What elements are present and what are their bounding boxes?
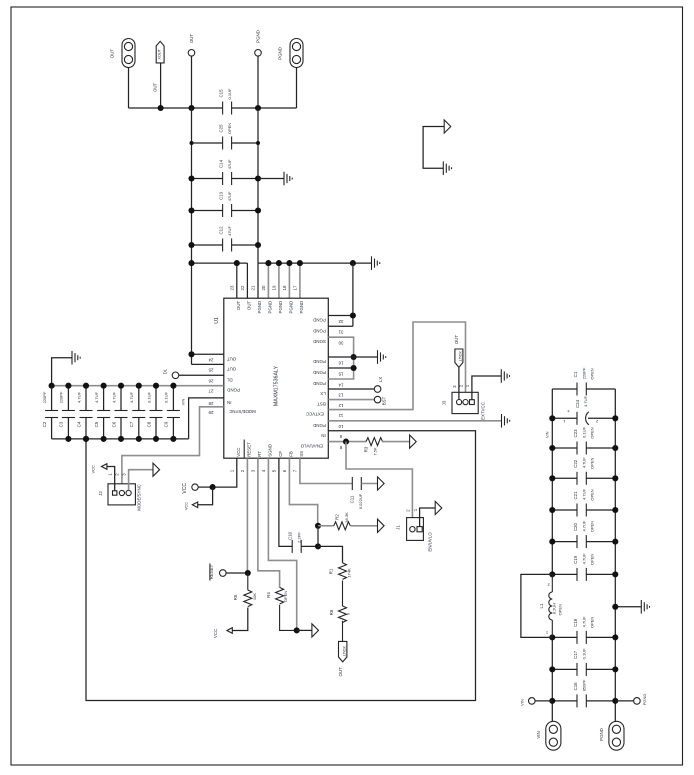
svg-text:0.1UF: 0.1UF	[164, 392, 169, 403]
svg-text:VIN: VIN	[180, 399, 185, 406]
svg-text:10: 10	[338, 424, 343, 429]
svg-text:VIN: VIN	[520, 699, 525, 706]
svg-text:0.1UF: 0.1UF	[581, 427, 586, 438]
svg-text:C17: C17	[573, 650, 578, 659]
svg-text:EXTVCC: EXTVCC	[480, 402, 485, 420]
svg-text:4.7UF: 4.7UF	[581, 553, 586, 564]
svg-text:XOUT: XOUT	[458, 351, 462, 362]
svg-text:C23: C23	[573, 429, 578, 438]
svg-text:OPEN: OPEN	[227, 123, 232, 134]
svg-text:SS: SS	[299, 451, 304, 457]
svg-text:C25: C25	[219, 124, 224, 133]
svg-text:C4: C4	[76, 421, 81, 427]
svg-text:4.7UF: 4.7UF	[581, 520, 586, 531]
svg-text:J1: J1	[396, 525, 401, 530]
svg-text:220PF: 220PF	[42, 391, 47, 403]
svg-text:PGND: PGND	[227, 388, 240, 393]
svg-text:PGND: PGND	[289, 301, 294, 314]
svg-text:PGND: PGND	[313, 318, 326, 323]
svg-text:EXTVCC: EXTVCC	[306, 412, 324, 417]
svg-text:C22: C22	[573, 459, 578, 468]
svg-text:IN: IN	[227, 400, 231, 405]
svg-text:FB: FB	[289, 451, 294, 457]
svg-text:R3: R3	[364, 446, 369, 452]
svg-text:R8: R8	[329, 609, 334, 615]
svg-text:OUT: OUT	[153, 82, 158, 92]
svg-text:OUT: OUT	[227, 366, 237, 371]
svg-text:850PF: 850PF	[581, 679, 586, 691]
svg-text:OPEN: OPEN	[589, 554, 594, 565]
svg-text:C5: C5	[94, 421, 99, 427]
svg-text:OUT: OUT	[338, 667, 343, 677]
svg-text:BST: BST	[317, 402, 326, 407]
svg-text:C15: C15	[219, 89, 224, 98]
svg-text:OPEN: OPEN	[283, 591, 288, 602]
svg-text:PGND: PGND	[313, 370, 326, 375]
svg-text:OPEN: OPEN	[589, 368, 594, 379]
svg-text:17: 17	[293, 285, 298, 290]
svg-text:PGND: PGND	[257, 301, 262, 314]
svg-text:OUT: OUT	[189, 34, 194, 44]
svg-text:PGND: PGND	[299, 301, 304, 314]
svg-text:4.7UF: 4.7UF	[129, 392, 134, 403]
svg-text:C9: C9	[164, 421, 169, 427]
svg-text:OPEN: OPEN	[589, 458, 594, 469]
svg-text:24: 24	[208, 357, 213, 362]
svg-text:PGND: PGND	[278, 301, 283, 314]
svg-text:C16: C16	[573, 682, 578, 691]
svg-text:12: 12	[338, 403, 343, 408]
svg-text:PGND: PGND	[313, 423, 326, 428]
svg-text:VCC: VCC	[90, 465, 95, 474]
svg-text:2.2PF: 2.2PF	[297, 532, 302, 543]
svg-text:L1: L1	[539, 603, 544, 608]
svg-text:PGND: PGND	[255, 30, 260, 43]
svg-text:16: 16	[338, 360, 343, 365]
svg-text:R4: R4	[266, 592, 271, 598]
svg-text:DL: DL	[163, 368, 168, 374]
svg-text:29: 29	[208, 410, 213, 415]
svg-text:ENA/UVLO: ENA/UVLO	[300, 444, 323, 449]
svg-text:47UF: 47UF	[227, 226, 232, 236]
svg-text:LX: LX	[320, 391, 325, 396]
svg-text:C12: C12	[219, 226, 224, 235]
svg-text:OPEN: OPEN	[589, 617, 594, 628]
svg-text:C8: C8	[146, 421, 151, 427]
svg-text:8.2UH: 8.2UH	[552, 603, 557, 614]
svg-text:C20: C20	[573, 523, 578, 532]
svg-text:174K: 174K	[347, 568, 352, 578]
svg-text:U1: U1	[214, 317, 220, 324]
svg-text:0.022UF: 0.022UF	[358, 493, 363, 509]
svg-text:SGND: SGND	[268, 444, 273, 457]
svg-text:C14: C14	[219, 159, 224, 168]
svg-text:IN: IN	[321, 433, 325, 438]
svg-text:CF: CF	[278, 451, 283, 457]
svg-text:25: 25	[208, 367, 213, 372]
svg-text:38.3K: 38.3K	[344, 512, 349, 523]
svg-text:11: 11	[338, 413, 343, 418]
svg-text:C7: C7	[129, 421, 134, 427]
svg-text:C21: C21	[573, 491, 578, 500]
svg-text:220PF: 220PF	[59, 391, 64, 403]
svg-text:C13: C13	[219, 191, 224, 200]
svg-text:PGND: PGND	[599, 728, 604, 741]
svg-text:7.5K: 7.5K	[373, 447, 378, 456]
svg-text:0.1UF: 0.1UF	[581, 648, 586, 659]
svg-text:VCC: VCC	[236, 448, 241, 457]
svg-text:13: 13	[338, 392, 343, 397]
svg-text:4.7UF: 4.7UF	[94, 392, 99, 403]
svg-text:OPEN: OPEN	[589, 489, 594, 500]
svg-text:R1: R1	[328, 568, 333, 574]
svg-text:VCC: VCC	[213, 629, 218, 638]
svg-text:21: 21	[251, 285, 256, 290]
svg-text:20: 20	[261, 285, 266, 290]
svg-text:0.1UF: 0.1UF	[146, 392, 151, 403]
svg-text:15: 15	[338, 371, 343, 376]
svg-text:RT: RT	[257, 451, 262, 457]
svg-text:47UF: 47UF	[227, 191, 232, 201]
svg-text:R5: R5	[233, 594, 238, 600]
svg-text:VCC: VCC	[182, 483, 188, 494]
svg-text:EN/UVLO: EN/UVLO	[427, 532, 432, 552]
svg-text:OPEN: OPEN	[589, 521, 594, 532]
svg-text:RESET: RESET	[247, 442, 252, 457]
svg-text:MODE/SYNC: MODE/SYNC	[229, 409, 256, 414]
svg-text:4.7UF: 4.7UF	[581, 457, 586, 468]
svg-text:4.7UF: 4.7UF	[581, 616, 586, 627]
svg-text:OUT: OUT	[110, 49, 115, 59]
svg-text:XOUT: XOUT	[158, 48, 162, 59]
svg-text:BST: BST	[382, 396, 387, 405]
svg-text:26: 26	[208, 378, 213, 383]
svg-text:XOUT: XOUT	[342, 646, 346, 657]
svg-text:30: 30	[338, 341, 343, 346]
svg-text:C2: C2	[42, 421, 47, 427]
svg-text:19: 19	[272, 285, 277, 290]
svg-text:C6: C6	[111, 421, 116, 427]
svg-text:R2: R2	[335, 514, 340, 520]
svg-text:OUT: OUT	[454, 335, 459, 345]
svg-text:31: 31	[338, 330, 343, 335]
svg-text:+: +	[566, 409, 571, 412]
svg-text:32: 32	[338, 319, 343, 324]
svg-text:J2: J2	[98, 491, 103, 496]
svg-text:28: 28	[208, 401, 213, 406]
svg-text:PGND: PGND	[313, 328, 326, 333]
svg-text:OPEN: OPEN	[589, 427, 594, 438]
svg-text:SGND: SGND	[313, 339, 326, 344]
svg-text:4.7UF: 4.7UF	[76, 392, 81, 403]
svg-text:VCC: VCC	[185, 502, 189, 510]
svg-text:PGND: PGND	[278, 47, 283, 60]
svg-text:MODE/SYNC: MODE/SYNC	[137, 484, 142, 511]
svg-text:PGND: PGND	[642, 694, 647, 706]
svg-text:DL: DL	[226, 377, 232, 382]
svg-text:4.7UF: 4.7UF	[581, 489, 586, 500]
svg-text:18: 18	[282, 285, 287, 290]
svg-text:C11: C11	[350, 495, 355, 503]
svg-text:22: 22	[240, 285, 245, 290]
svg-text:C18: C18	[573, 618, 578, 627]
svg-text:OUT: OUT	[236, 300, 241, 310]
svg-text:4.7UF: 4.7UF	[583, 396, 588, 407]
svg-text:PGND: PGND	[313, 381, 326, 386]
svg-text:220PF: 220PF	[581, 367, 586, 379]
svg-text:47UF: 47UF	[227, 159, 232, 169]
svg-text:10K: 10K	[252, 593, 257, 600]
svg-text:C24: C24	[575, 399, 580, 408]
svg-text:0.1UF: 0.1UF	[227, 88, 232, 99]
svg-text:PGND: PGND	[313, 359, 326, 364]
svg-text:27: 27	[208, 389, 213, 394]
svg-text:C1: C1	[573, 371, 578, 377]
svg-text:14: 14	[338, 382, 343, 387]
svg-text:OUT: OUT	[247, 300, 252, 310]
svg-text:C19: C19	[573, 555, 578, 564]
svg-text:C10: C10	[288, 531, 293, 540]
svg-text:4.7UF: 4.7UF	[111, 392, 116, 403]
svg-text:LX: LX	[378, 377, 383, 382]
svg-text:C3: C3	[59, 421, 64, 427]
svg-text:J3: J3	[441, 400, 446, 405]
svg-text:OPEN: OPEN	[558, 604, 563, 615]
svg-text:VIN: VIN	[544, 431, 549, 438]
svg-text:MAXM17536ALY: MAXM17536ALY	[273, 365, 279, 406]
svg-text:23: 23	[230, 285, 235, 290]
svg-text:OUT: OUT	[227, 356, 237, 361]
svg-text:PGND: PGND	[268, 301, 273, 314]
svg-text:VIN: VIN	[536, 731, 541, 738]
